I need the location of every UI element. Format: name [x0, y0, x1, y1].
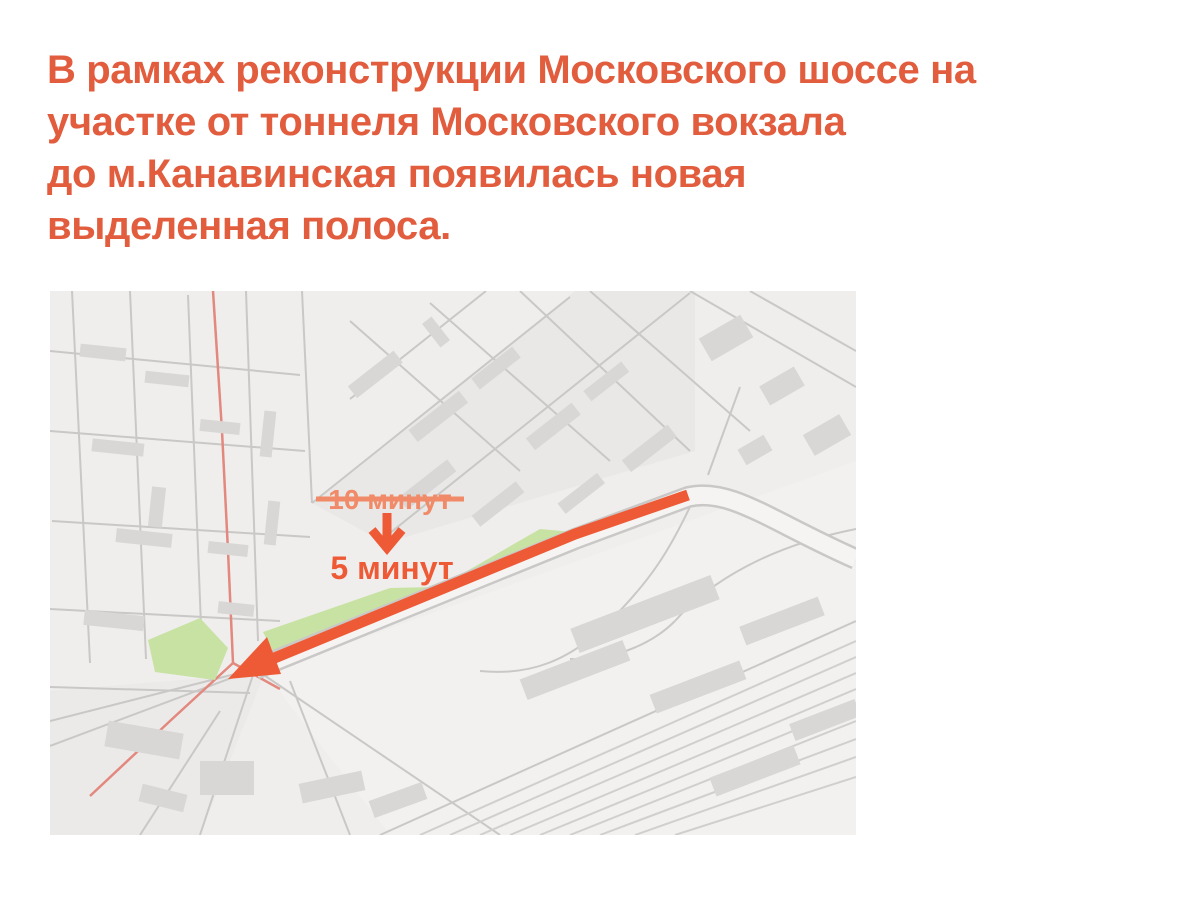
- city-map: 10 минут 5 минут: [50, 291, 856, 835]
- page-title: В рамках реконструкции Московского шоссе…: [47, 44, 1167, 252]
- map-panel: 10 минут 5 минут: [50, 291, 856, 835]
- slide: В рамках реконструкции Московского шоссе…: [0, 0, 1200, 899]
- new-travel-time-label: 5 минут: [330, 550, 453, 586]
